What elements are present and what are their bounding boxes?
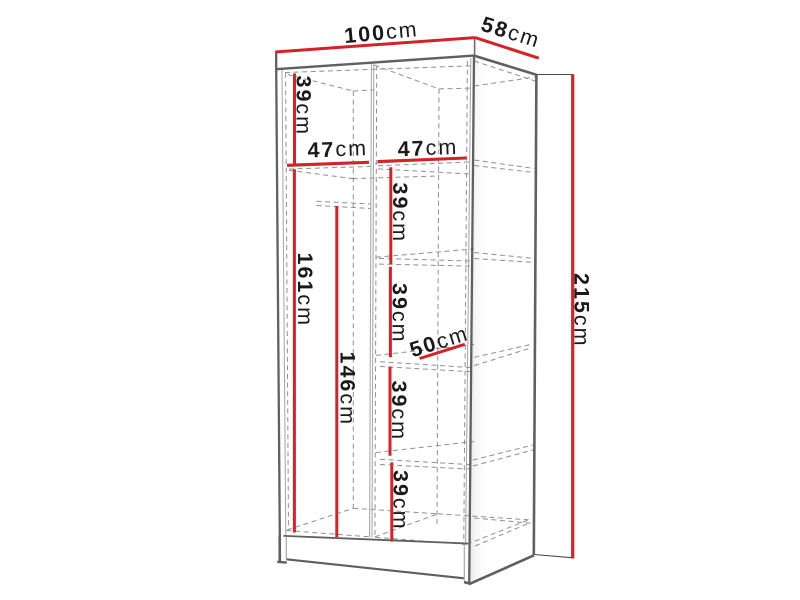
svg-text:47cm: 47cm bbox=[397, 135, 458, 161]
svg-text:39cm: 39cm bbox=[387, 381, 411, 442]
svg-text:161cm: 161cm bbox=[293, 253, 317, 328]
svg-text:39cm: 39cm bbox=[389, 470, 413, 531]
svg-text:146cm: 146cm bbox=[335, 352, 359, 427]
svg-text:39cm: 39cm bbox=[388, 183, 412, 244]
svg-text:39cm: 39cm bbox=[387, 283, 411, 344]
svg-text:47cm: 47cm bbox=[307, 136, 368, 162]
svg-text:39cm: 39cm bbox=[292, 76, 316, 137]
svg-text:215cm: 215cm bbox=[570, 273, 594, 348]
